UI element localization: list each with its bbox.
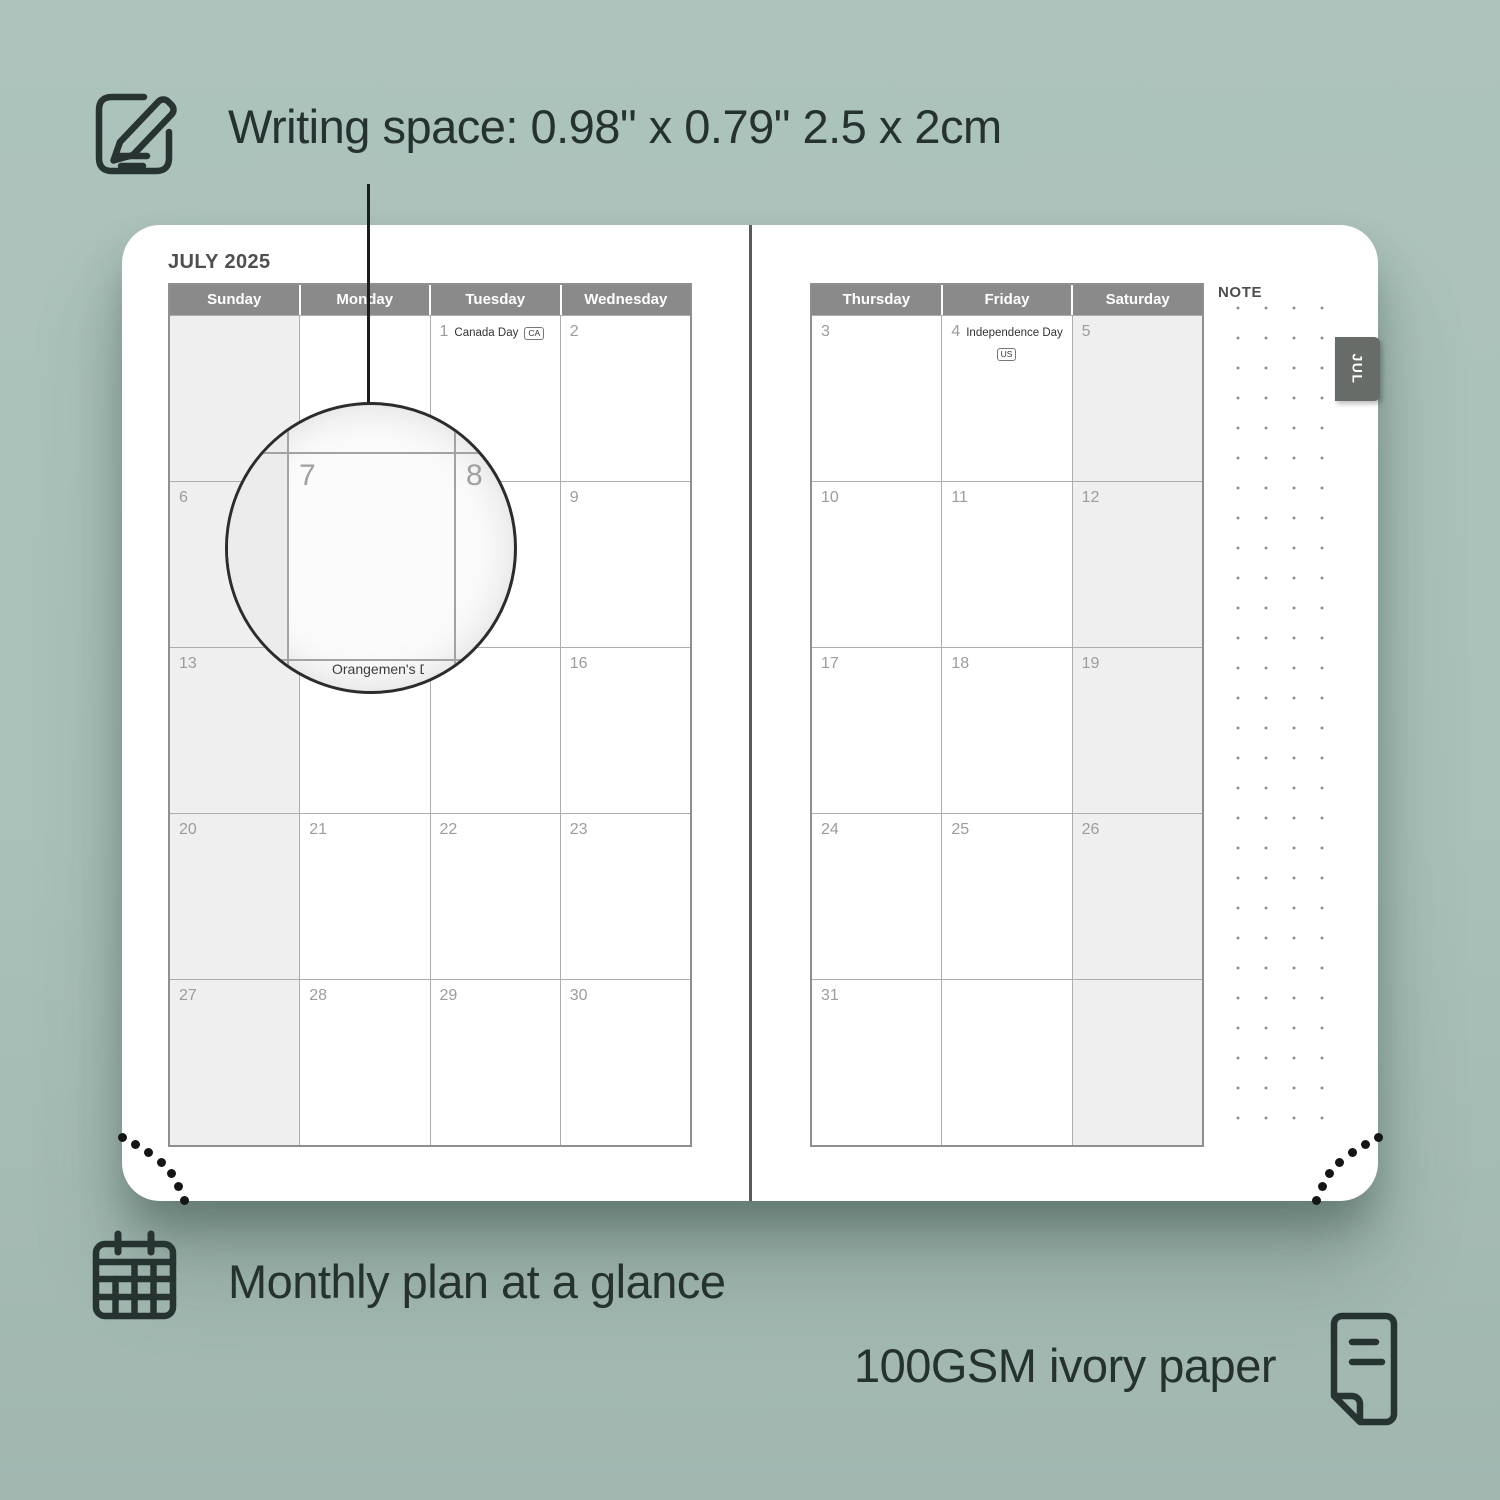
stitch-dot — [1361, 1140, 1370, 1149]
day-number: 22 — [440, 821, 458, 839]
day-number: 31 — [821, 987, 839, 1005]
note-dot-grid: NOTE — [1218, 287, 1342, 1139]
month-tab-label: JUL — [1349, 354, 1365, 385]
calendar-cell: 19 — [1073, 648, 1202, 813]
stitch-dot — [157, 1158, 166, 1167]
day-number: 2 — [570, 323, 579, 341]
magnifier-pointer-line — [367, 184, 370, 408]
day-number: 27 — [179, 987, 197, 1005]
calendar-cell: 15 — [431, 648, 561, 813]
writing-space-magnifier: 7 8 Orangemen's Day — [225, 402, 517, 694]
day-number: 12 — [1082, 489, 1100, 507]
day-number: 21 — [309, 821, 327, 839]
day-number: 19 — [1082, 655, 1100, 673]
day-number: 3 — [821, 323, 830, 341]
calendar-cell: 2 — [561, 316, 690, 481]
calendar-cell: 26 — [1073, 814, 1202, 979]
day-header: Tuesday — [431, 285, 562, 315]
calendar-cell: 23 — [561, 814, 690, 979]
calendar-cell — [942, 980, 1072, 1145]
magnified-grid-line — [287, 405, 289, 691]
calendar-cell: 20 — [170, 814, 300, 979]
calendar-week-row: 101112 — [812, 481, 1202, 647]
day-number: 9 — [570, 489, 579, 507]
stitch-dot — [1348, 1148, 1357, 1157]
day-number: 20 — [179, 821, 197, 839]
stitch-dot — [118, 1133, 127, 1142]
notepad-pencil-icon — [86, 80, 186, 188]
day-number: 24 — [821, 821, 839, 839]
day-number: 11 — [951, 489, 968, 507]
day-number: 25 — [951, 821, 969, 839]
calendar-cell: 5 — [1073, 316, 1202, 481]
day-number: 4 — [951, 323, 960, 341]
calendar-cell: 25 — [942, 814, 1072, 979]
day-number: 30 — [570, 987, 588, 1005]
calendar-cell: 10 — [812, 482, 942, 647]
day-number: 16 — [570, 655, 588, 673]
stitch-dot — [1312, 1196, 1321, 1205]
day-number: 5 — [1082, 323, 1091, 341]
day-number: 1 — [440, 323, 449, 341]
holiday-country-badge: US — [997, 348, 1017, 361]
day-number: 17 — [821, 655, 839, 673]
day-header: Saturday — [1073, 285, 1202, 315]
calendar-week-row: 27282930 — [170, 979, 690, 1145]
page-spine — [749, 225, 752, 1201]
month-tab-jul: JUL — [1335, 337, 1380, 401]
stitch-dot — [144, 1148, 153, 1157]
magnified-holiday-text: Orangemen's Day — [332, 661, 424, 677]
calendar-cell: 22 — [431, 814, 561, 979]
calendar-cell — [1073, 980, 1202, 1145]
day-number: 28 — [309, 987, 327, 1005]
stitch-dot — [167, 1169, 176, 1178]
calendar-week-row: 171819 — [812, 647, 1202, 813]
calendar-cell: 24 — [812, 814, 942, 979]
day-number: 23 — [570, 821, 588, 839]
month-title: JULY 2025 — [168, 251, 271, 274]
planner-spread: JULY 2025 SundayMondayTuesdayWednesday1C… — [122, 225, 1378, 1201]
day-number: 18 — [951, 655, 969, 673]
day-number: 6 — [179, 489, 188, 507]
calendar-cell: 12 — [1073, 482, 1202, 647]
calendar-cell: 11 — [942, 482, 1072, 647]
stitch-dot — [1318, 1182, 1327, 1191]
calendar-week-row: 242526 — [812, 813, 1202, 979]
holiday-label: Canada Day — [454, 327, 518, 339]
calendar-cell: 21 — [300, 814, 430, 979]
calendar-grid-icon — [82, 1226, 187, 1331]
magnified-grid-line — [454, 405, 456, 691]
stitch-dot — [1335, 1158, 1344, 1167]
magnified-grid-line — [228, 452, 514, 454]
stitch-dot — [1374, 1133, 1383, 1142]
day-header: Sunday — [170, 285, 301, 315]
day-header-row: SundayMondayTuesdayWednesday — [170, 285, 690, 315]
calendar-cell: 31 — [812, 980, 942, 1145]
calendar-week-row: 20212223 — [170, 813, 690, 979]
calendar-cell: 3 — [812, 316, 942, 481]
paper-caption: 100GSM ivory paper — [854, 1338, 1276, 1393]
day-number: 26 — [1082, 821, 1100, 839]
stitch-dot — [1325, 1169, 1334, 1178]
day-header-row: ThursdayFridaySaturday — [812, 285, 1202, 315]
day-header: Wednesday — [562, 285, 691, 315]
calendar-cell: 4Independence DayUS — [942, 316, 1072, 481]
day-number: 29 — [440, 987, 458, 1005]
day-header: Monday — [301, 285, 432, 315]
day-header: Thursday — [812, 285, 943, 315]
magnified-sunday-shading — [228, 405, 288, 691]
magnified-day-7: 7 — [299, 459, 316, 493]
stitch-dot — [180, 1196, 189, 1205]
calendar-week-row: 31 — [812, 979, 1202, 1145]
calendar-cell: 27 — [170, 980, 300, 1145]
writing-space-caption: Writing space: 0.98" x 0.79" 2.5 x 2cm — [228, 99, 1002, 154]
day-number: 10 — [821, 489, 839, 507]
calendar-cell: 9 — [561, 482, 690, 647]
holiday-country-badge: CA — [524, 327, 544, 340]
calendar-week-row: 34Independence DayUS5 — [812, 315, 1202, 481]
calendar-cell: 29 — [431, 980, 561, 1145]
calendar-cell: 28 — [300, 980, 430, 1145]
calendar-cell: 16 — [561, 648, 690, 813]
holiday-label: Independence Day — [966, 327, 1063, 339]
paper-page-icon — [1320, 1310, 1408, 1428]
magnified-day-8: 8 — [466, 459, 483, 493]
day-header: Friday — [943, 285, 1074, 315]
stitch-dot — [131, 1140, 140, 1149]
note-label: NOTE — [1218, 284, 1269, 304]
calendar-cell: 17 — [812, 648, 942, 813]
monthly-plan-caption: Monthly plan at a glance — [228, 1254, 726, 1309]
right-page-calendar: ThursdayFridaySaturday34Independence Day… — [810, 283, 1204, 1147]
calendar-cell: 30 — [561, 980, 690, 1145]
calendar-cell: 18 — [942, 648, 1072, 813]
stitch-dot — [174, 1182, 183, 1191]
day-number: 13 — [179, 655, 197, 673]
